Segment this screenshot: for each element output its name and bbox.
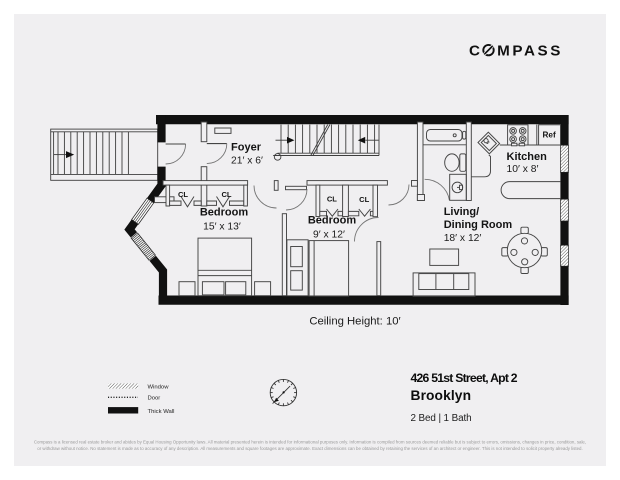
svg-text:9′ x 12′: 9′ x 12′ xyxy=(313,229,345,240)
svg-text:Door: Door xyxy=(148,396,161,402)
svg-text:CL: CL xyxy=(327,195,337,204)
svg-text:21′ x 6′: 21′ x 6′ xyxy=(231,156,263,167)
svg-text:CL: CL xyxy=(178,190,188,199)
svg-text:Dining Room: Dining Room xyxy=(444,219,513,231)
svg-text:Bedroom: Bedroom xyxy=(308,214,357,226)
svg-text:2 Bed | 1 Bath: 2 Bed | 1 Bath xyxy=(411,413,472,424)
svg-text:Foyer: Foyer xyxy=(231,141,262,153)
svg-text:Thick Wall: Thick Wall xyxy=(148,409,175,415)
svg-text:CL: CL xyxy=(359,195,369,204)
svg-text:MPASS: MPASS xyxy=(497,43,563,60)
svg-text:15′ x 13′: 15′ x 13′ xyxy=(203,221,241,232)
svg-text:Window: Window xyxy=(148,385,170,391)
svg-text:Living/: Living/ xyxy=(444,206,479,218)
svg-text:Bedroom: Bedroom xyxy=(200,206,249,218)
svg-text:Ref: Ref xyxy=(543,131,556,140)
svg-text:Kitchen: Kitchen xyxy=(507,151,548,163)
svg-text:Ceiling Height: 10′: Ceiling Height: 10′ xyxy=(309,316,400,328)
svg-text:or withdraw without notice. No: or withdraw without notice. No statement… xyxy=(37,446,582,451)
svg-text:C: C xyxy=(469,43,483,60)
svg-text:10′ x 8′: 10′ x 8′ xyxy=(507,164,539,175)
svg-text:18′ x 12′: 18′ x 12′ xyxy=(444,233,482,244)
svg-text:426 51st Street, Apt 2: 426 51st Street, Apt 2 xyxy=(411,371,518,385)
svg-text:Brooklyn: Brooklyn xyxy=(411,388,472,403)
svg-text:Compass is a licensed real est: Compass is a licensed real estate broker… xyxy=(34,440,586,445)
svg-text:CL: CL xyxy=(221,190,231,199)
